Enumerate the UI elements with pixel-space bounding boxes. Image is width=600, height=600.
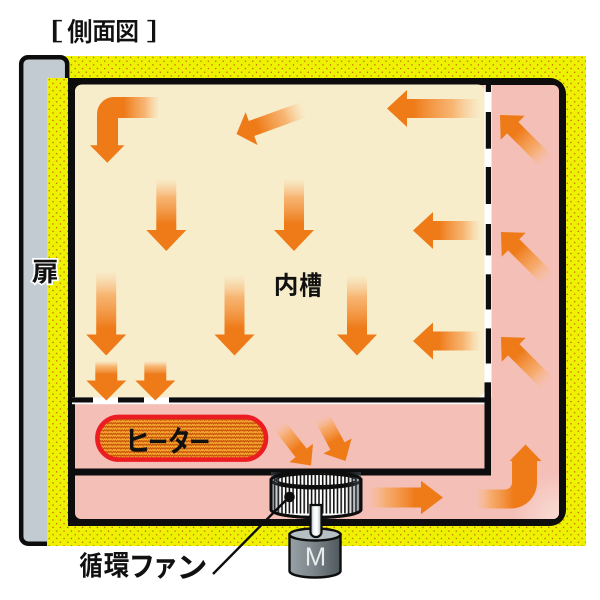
svg-text:M: M <box>305 544 326 572</box>
